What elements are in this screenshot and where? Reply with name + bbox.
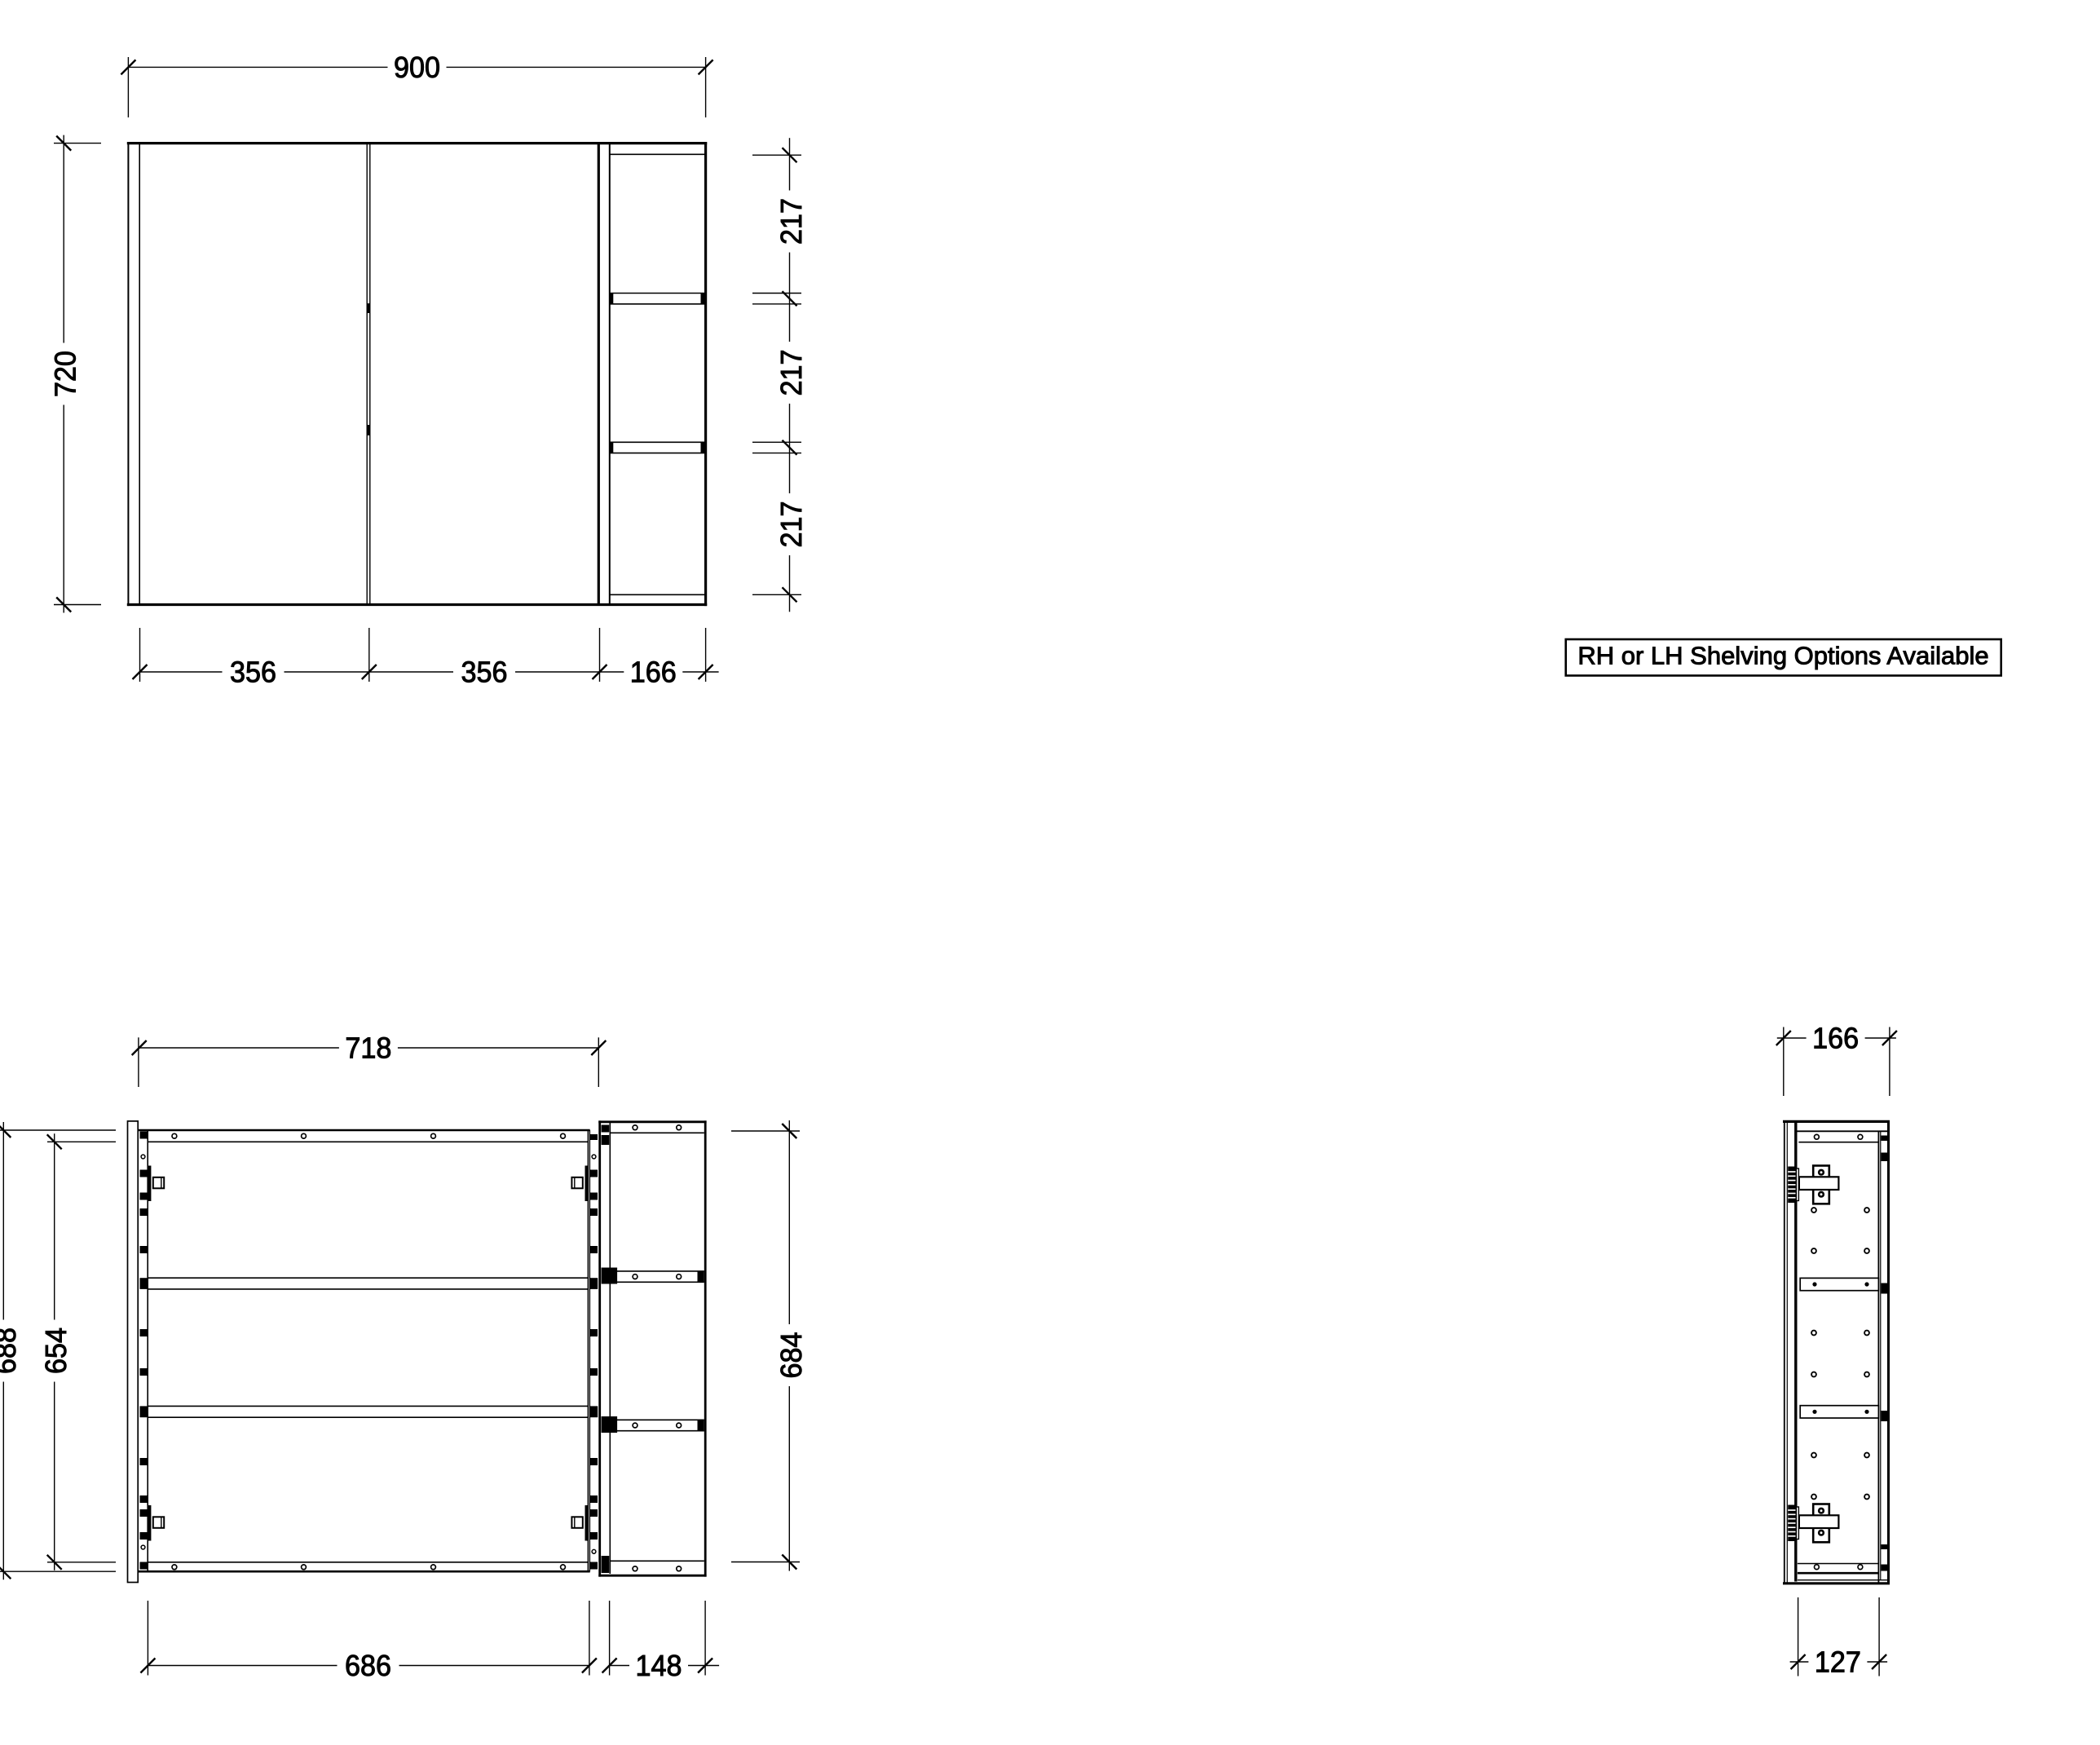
svg-text:RH or LH Shelving Options Avai: RH or LH Shelving Options Available (1577, 642, 1988, 670)
svg-text:686: 686 (345, 1649, 391, 1682)
svg-text:688: 688 (0, 1328, 22, 1374)
svg-text:900: 900 (394, 51, 440, 84)
svg-text:148: 148 (636, 1649, 682, 1682)
svg-text:356: 356 (461, 656, 508, 689)
svg-text:720: 720 (49, 351, 82, 397)
svg-text:718: 718 (345, 1032, 391, 1065)
svg-text:166: 166 (630, 656, 677, 689)
svg-text:684: 684 (774, 1332, 808, 1379)
svg-text:127: 127 (1815, 1646, 1861, 1679)
svg-text:217: 217 (774, 350, 808, 396)
svg-text:217: 217 (774, 501, 808, 548)
svg-text:217: 217 (774, 198, 808, 245)
svg-text:166: 166 (1812, 1022, 1859, 1055)
svg-text:654: 654 (39, 1328, 73, 1374)
svg-text:356: 356 (230, 656, 276, 689)
